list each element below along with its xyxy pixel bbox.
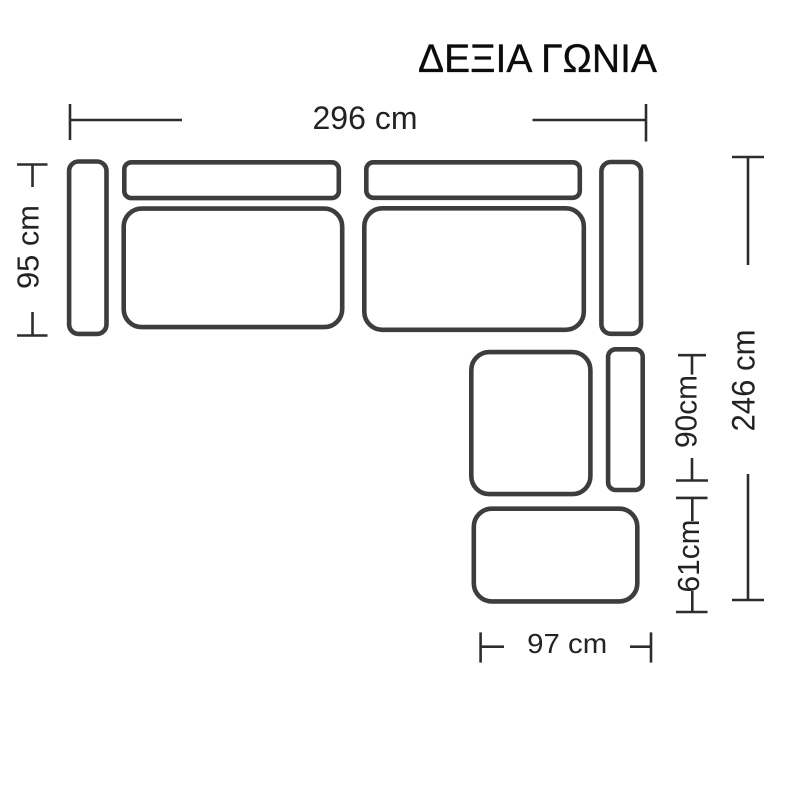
svg-text:90cm: 90cm [669, 375, 704, 448]
svg-text:296 cm: 296 cm [313, 100, 418, 136]
svg-text:246 cm: 246 cm [726, 330, 762, 432]
svg-text:ΔΕΞΙΑ ΓΩΝΙΑ: ΔΕΞΙΑ ΓΩΝΙΑ [418, 37, 657, 81]
svg-text:61cm: 61cm [671, 520, 706, 593]
svg-text:95 cm: 95 cm [11, 205, 46, 289]
svg-text:97 cm: 97 cm [527, 628, 607, 659]
